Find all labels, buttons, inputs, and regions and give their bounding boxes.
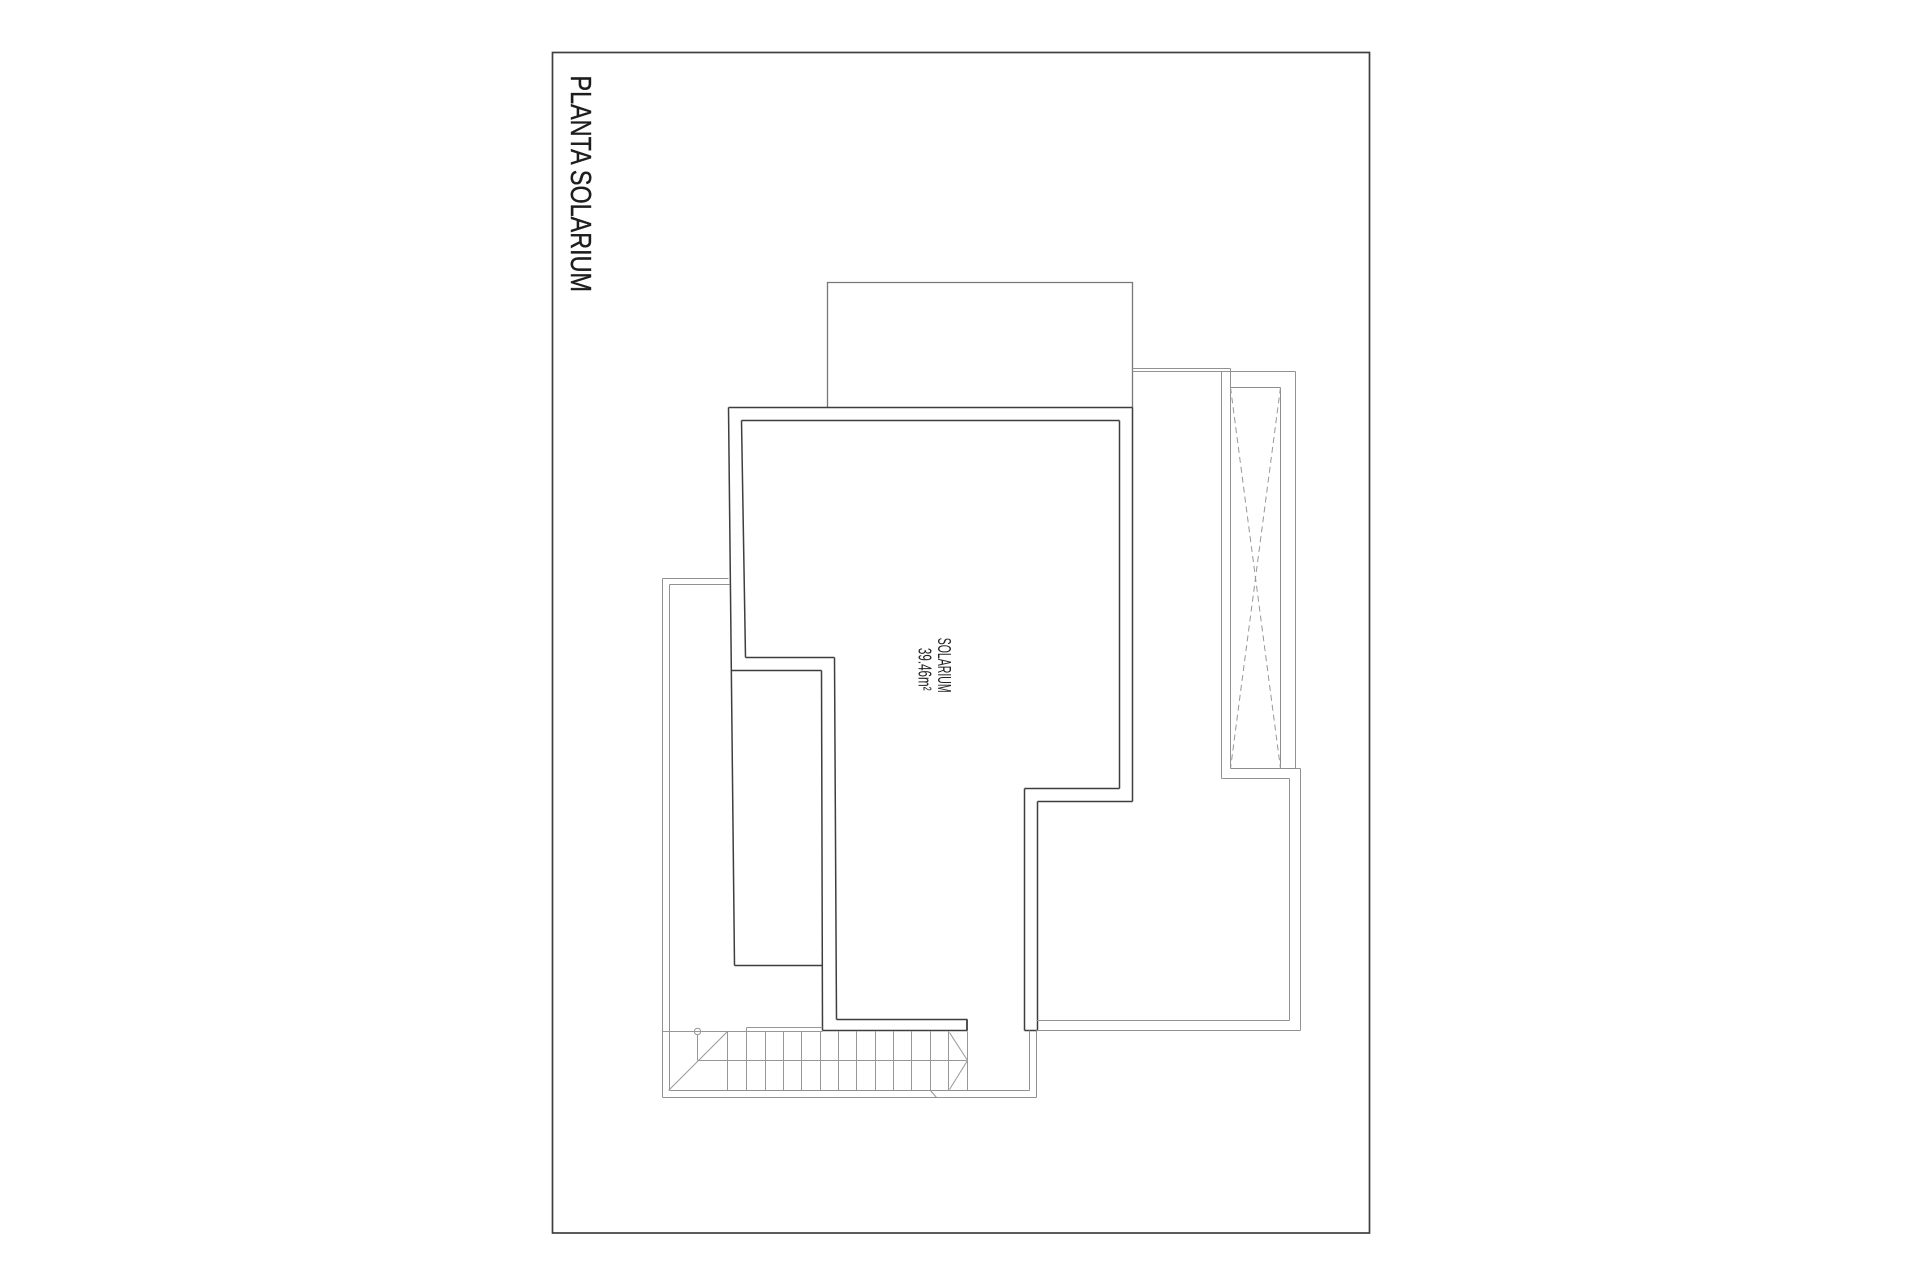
svg-text:SOLARIUM: SOLARIUM bbox=[934, 638, 955, 693]
svg-text:39.46m²: 39.46m² bbox=[915, 648, 936, 691]
svg-text:PLANTA SOLARIUM: PLANTA SOLARIUM bbox=[564, 76, 596, 293]
